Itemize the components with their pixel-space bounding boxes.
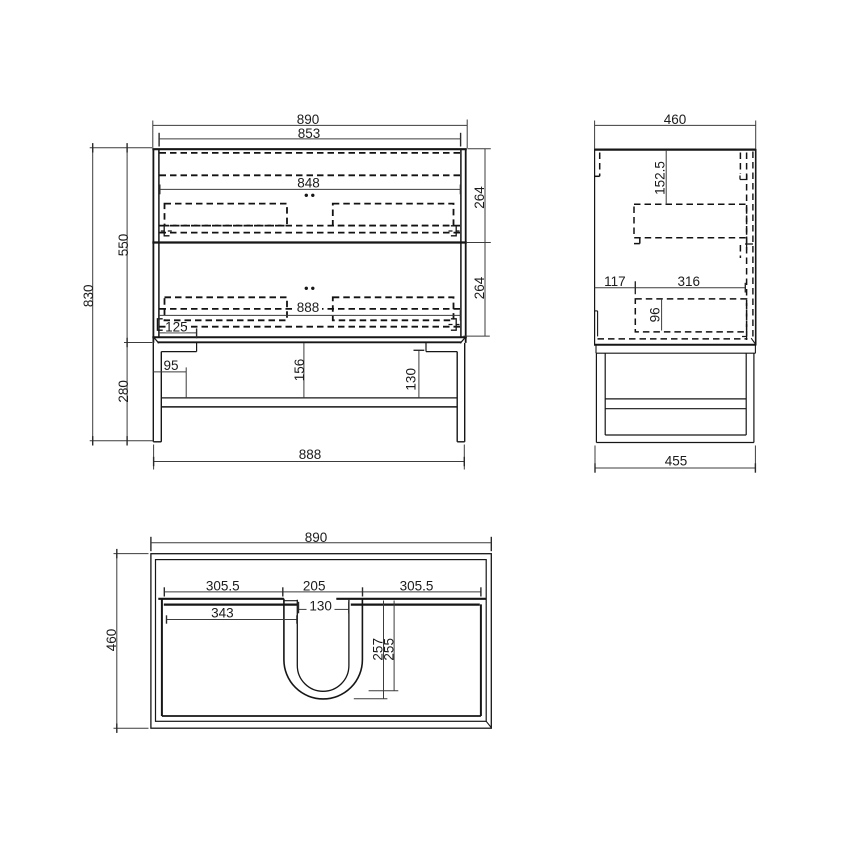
svg-text:316: 316	[678, 274, 701, 289]
svg-text:125: 125	[165, 319, 188, 334]
svg-text:853: 853	[298, 126, 321, 141]
svg-text:460: 460	[664, 112, 687, 127]
svg-text:152.5: 152.5	[653, 161, 668, 195]
svg-text:264: 264	[472, 186, 487, 209]
svg-text:130: 130	[404, 368, 419, 391]
svg-text:888: 888	[299, 447, 322, 462]
svg-text:255: 255	[381, 638, 396, 661]
svg-text:95: 95	[163, 358, 178, 373]
svg-text:830: 830	[81, 285, 96, 308]
svg-text:305.5: 305.5	[400, 578, 434, 593]
svg-text:96: 96	[648, 307, 663, 322]
svg-text:117: 117	[604, 274, 626, 289]
svg-text:550: 550	[116, 234, 131, 257]
svg-text:890: 890	[305, 530, 328, 545]
svg-text:460: 460	[104, 629, 119, 652]
svg-text:264: 264	[472, 276, 487, 299]
svg-text:305.5: 305.5	[206, 578, 240, 593]
svg-text:280: 280	[116, 380, 131, 403]
svg-text:888: 888	[297, 300, 320, 315]
svg-text:205: 205	[303, 578, 326, 593]
svg-text:455: 455	[665, 453, 688, 468]
svg-text:343: 343	[211, 605, 234, 620]
svg-text:156: 156	[292, 359, 307, 382]
svg-text:130: 130	[309, 598, 332, 613]
svg-text:848: 848	[297, 175, 320, 190]
